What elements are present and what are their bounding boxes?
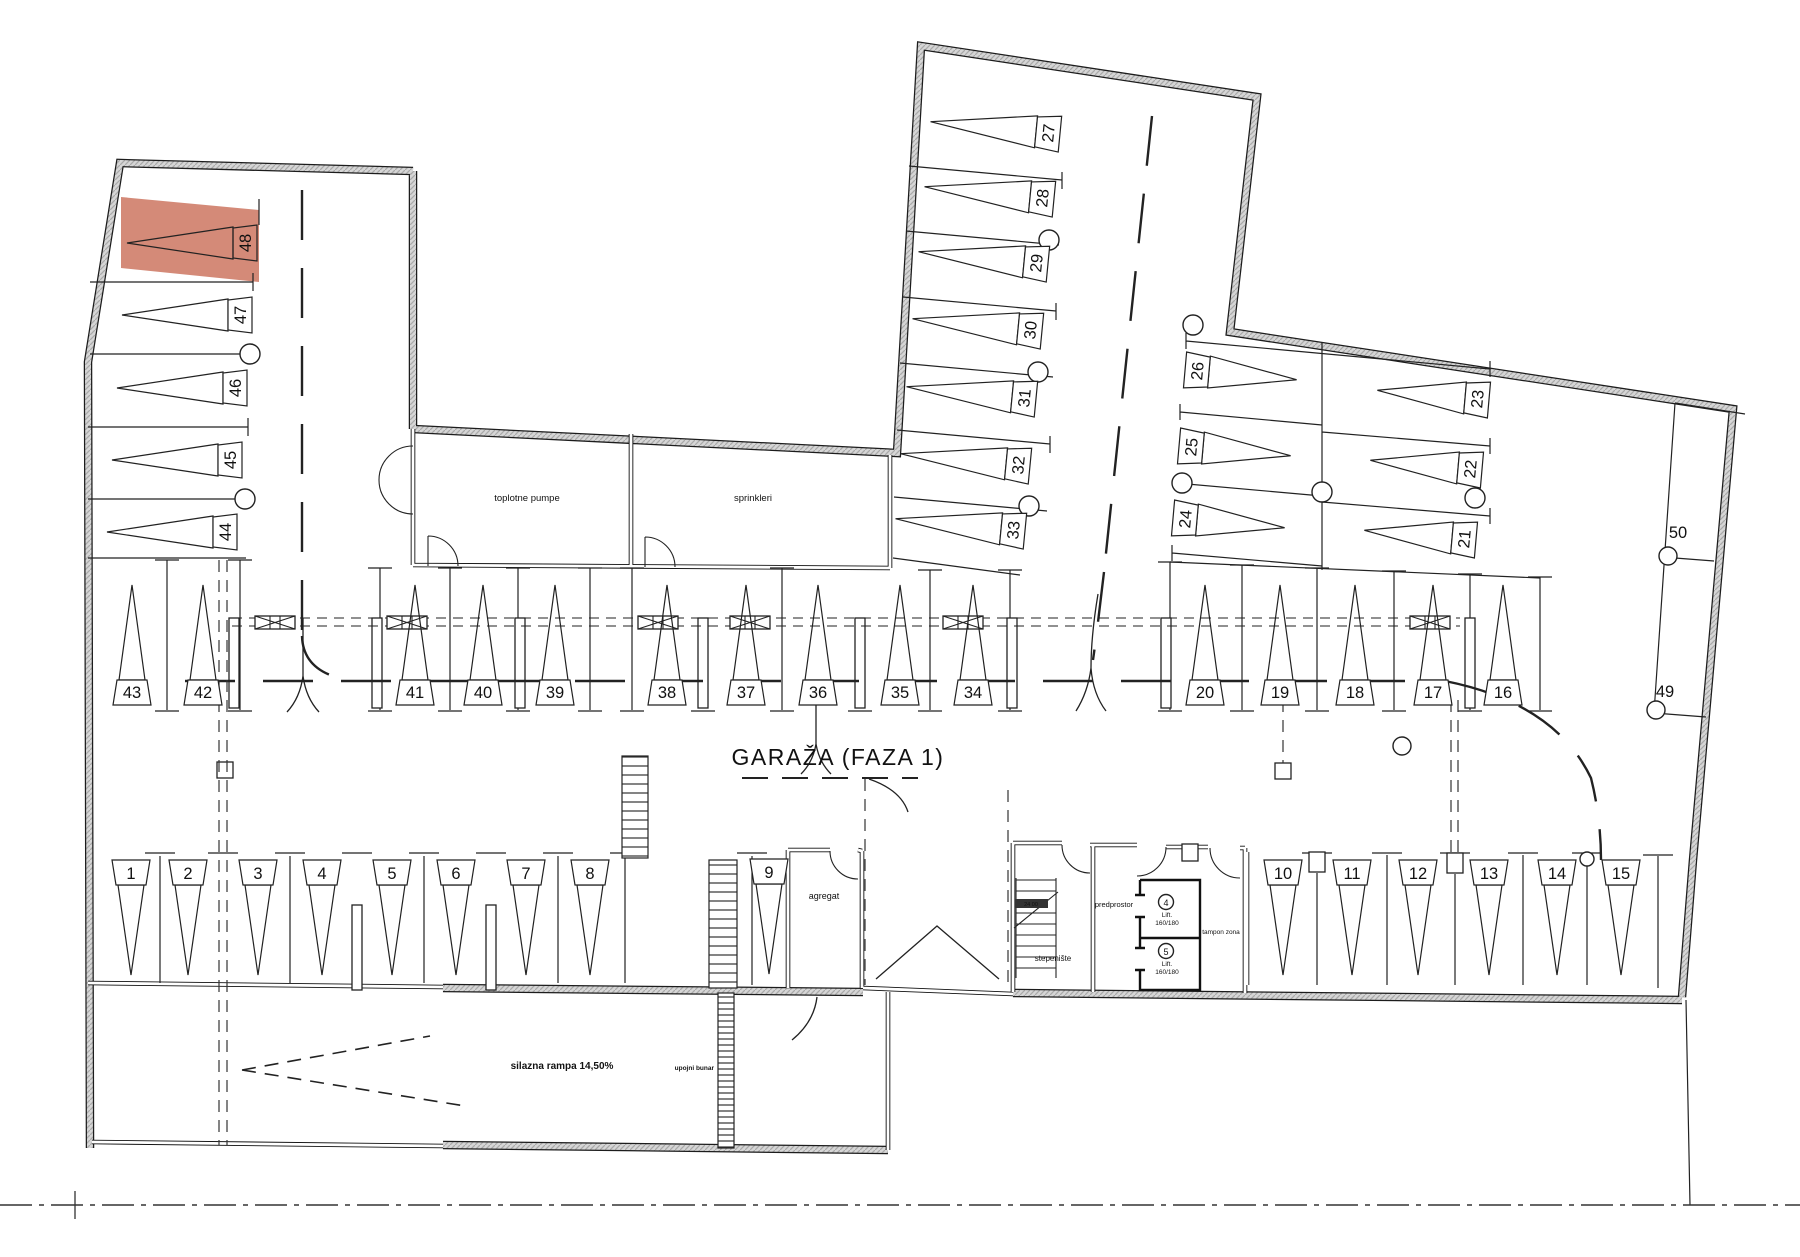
spot-number: 2 [183,865,192,883]
parking-spot-39[interactable]: 39 [536,585,574,705]
spot-wedge [1208,356,1298,396]
parking-spot-10[interactable]: 10 [1264,860,1302,975]
parking-spot-13[interactable]: 13 [1470,860,1508,975]
parking-spot-44[interactable]: 44 [107,514,237,550]
parking-spot-3[interactable]: 3 [239,860,277,975]
plan-title: GARAŽA (FAZA 1) [732,744,945,770]
parking-spot-50[interactable]: 50 [1669,524,1687,542]
parking-spot-17[interactable]: 17 [1414,585,1452,705]
parking-spot-15[interactable]: 15 [1602,860,1640,975]
spot-wedge [1342,585,1368,680]
spot-wedge [905,371,1014,413]
stairs-note: 24 00 [1024,902,1038,908]
parking-spot-43[interactable]: 43 [113,585,151,705]
spot-number: 26 [1188,361,1208,381]
spot-wedge [542,585,568,680]
spot-number: 13 [1480,865,1498,883]
columns [217,230,1677,990]
room-label-sprinkleri: sprinkleri [734,493,772,504]
spot-wedge [1490,585,1516,680]
spot-wedge [1267,585,1293,680]
spot-number: 39 [546,684,564,702]
spot-wedge [1369,444,1459,484]
spot-number: 46 [227,379,245,397]
spot-wedge [1476,885,1502,975]
spot-wedge [1270,885,1296,975]
spot-number: 14 [1548,865,1566,883]
parking-spot-4[interactable]: 4 [303,860,341,975]
lane-lines [0,116,1800,1205]
spot-number: 27 [1039,123,1059,143]
spot-number: 4 [317,865,326,883]
parking-spot-34[interactable]: 34 [954,585,992,705]
spot-number: 30 [1021,320,1041,340]
spot-wedge [1202,432,1292,472]
lift-5-number: 5 [1163,947,1168,957]
spot-number: 25 [1182,437,1202,457]
spot-wedge [443,885,469,975]
spot-number: 12 [1409,865,1427,883]
spot-wedge [1196,504,1286,544]
parking-spot-8[interactable]: 8 [571,860,609,975]
spot-number: 17 [1424,684,1442,702]
parking-spot-21[interactable]: 21 [1363,512,1478,558]
floor-plan-canvas: 24 00 1234567891011121314151617181920212… [0,0,1800,1257]
spot-number: 29 [1027,253,1047,273]
spot-number: 19 [1271,684,1289,702]
room-label-predprostor: predprostor [1095,900,1134,909]
parking-spot-6[interactable]: 6 [437,860,475,975]
spot-wedge [245,885,271,975]
spot-number: 41 [406,684,424,702]
spot-wedge [1363,514,1453,554]
parking-spot-46[interactable]: 46 [117,370,247,406]
spot-wedge [122,299,228,331]
labels: GARAŽA (FAZA 1) toplotne pumpe sprinkler… [494,493,1240,1072]
spot-number: 47 [232,306,250,324]
room-label-stepeniste: stepenište [1035,954,1072,963]
spot-number: 5 [387,865,396,883]
spot-wedge [899,438,1008,480]
parking-spot-22[interactable]: 22 [1369,442,1484,488]
spot-wedge [887,585,913,680]
parking-spot-42[interactable]: 42 [184,585,222,705]
parking-spot-14[interactable]: 14 [1538,860,1576,975]
parking-spot-26[interactable]: 26 [1183,352,1298,398]
spot-number: 18 [1346,684,1364,702]
spot-number: 32 [1009,455,1029,475]
spot-number: 3 [253,865,262,883]
spot-wedge [107,516,213,548]
spot-wedge [112,444,218,476]
room-label-tampon: tampon zona [1202,929,1240,936]
spot-wedge [960,585,986,680]
spot-wedge [577,885,603,975]
spot-wedge [513,885,539,975]
spot-wedge [1544,885,1570,975]
parking-spot-5[interactable]: 5 [373,860,411,975]
garage-floor-plan: 24 00 1234567891011121314151617181920212… [0,0,1800,1257]
ramp-direction-arrow [242,1036,465,1106]
parking-spot-12[interactable]: 12 [1399,860,1437,975]
spot-wedge [175,885,201,975]
lift-4-size: 160/180 [1155,920,1179,927]
spot-wedge [733,585,759,680]
parking-spot-33[interactable]: 33 [894,501,1027,549]
spot-number: 42 [194,684,212,702]
spot-number: 22 [1461,459,1481,479]
spot-number: 34 [964,684,982,702]
parking-spot-28[interactable]: 28 [923,169,1056,217]
parking-spot-2[interactable]: 2 [169,860,207,975]
spot-number: 10 [1274,865,1292,883]
parking-spot-19[interactable]: 19 [1261,585,1299,705]
parking-spot-11[interactable]: 11 [1333,860,1371,975]
spot-number: 44 [217,523,235,541]
parking-spot-35[interactable]: 35 [881,585,919,705]
spot-number: 23 [1468,389,1488,409]
parking-spot-9[interactable]: 9 [750,859,788,974]
spot-number: 8 [585,865,594,883]
spot-wedge [117,372,223,404]
spot-number: 9 [764,864,773,882]
well-label: upojni bunar [675,1065,715,1072]
spot-wedge [402,585,428,680]
well-ladders [622,756,737,1148]
spot-number: 24 [1176,509,1196,529]
ramp-label: silazna rampa 14,50% [511,1061,614,1072]
spot-wedge [929,106,1038,148]
lift-4-name: Lift. [1162,912,1173,919]
parking-spot-27[interactable]: 27 [929,104,1062,152]
parking-spot-45[interactable]: 45 [112,442,242,478]
spot-wedge [654,585,680,680]
spot-number: 28 [1033,188,1053,208]
spot-wedge [1420,585,1446,680]
spot-wedge [894,503,1003,545]
lift-5-size: 160/180 [1155,969,1179,976]
lift-4-number: 4 [1163,898,1168,908]
spot-wedge [1339,885,1365,975]
parking-spot-25[interactable]: 25 [1177,428,1292,474]
spot-number: 11 [1343,865,1360,883]
spot-number: 43 [123,684,141,702]
parking-spot-31[interactable]: 31 [905,369,1038,417]
spot-wedge [1608,885,1634,975]
spot-number: 40 [474,684,492,702]
room-label-toplotne: toplotne pumpe [494,493,560,504]
parking-spots: 1234567891011121314151617181920212223242… [107,104,1687,975]
spot-wedge [1192,585,1218,680]
spot-wedge [756,884,782,974]
parking-spot-38[interactable]: 38 [648,585,686,705]
spot-number: 6 [451,865,460,883]
parking-spot-18[interactable]: 18 [1336,585,1374,705]
parking-spot-47[interactable]: 47 [122,297,252,333]
spot-number: 50 [1669,524,1687,542]
parking-spot-37[interactable]: 37 [727,585,765,705]
spot-wedge [309,885,335,975]
parking-spot-40[interactable]: 40 [464,585,502,705]
spot-number: 45 [222,451,240,469]
spot-number: 1 [126,865,135,883]
spot-wedge [119,585,145,680]
entrance-chevron [876,926,999,979]
spot-wedge [1405,885,1431,975]
spot-number: 31 [1015,388,1035,408]
spot-number: 21 [1455,529,1475,549]
spot-wedge [190,585,216,680]
spot-wedge [379,885,405,975]
parking-spot-23[interactable]: 23 [1376,372,1491,418]
parking-spot-49[interactable]: 49 [1656,683,1674,701]
parking-spot-36[interactable]: 36 [799,585,837,705]
parking-spot-32[interactable]: 32 [899,436,1032,484]
spot-wedge [470,585,496,680]
interior-walls [88,429,1247,1150]
parking-spot-24[interactable]: 24 [1171,500,1286,546]
spot-number: 15 [1612,865,1630,883]
parking-spot-41[interactable]: 41 [396,585,434,705]
spot-number: 37 [737,684,755,702]
spot-number: 36 [809,684,827,702]
spot-wedge [923,171,1032,213]
spot-wedge [1376,374,1466,414]
room-label-agregat: agregat [809,891,840,901]
spot-number: 48 [237,234,255,252]
spot-wedge [911,303,1020,345]
parking-spot-16[interactable]: 16 [1484,585,1522,705]
spot-number: 38 [658,684,676,702]
spot-wedge [118,885,144,975]
spot-number: 49 [1656,683,1674,701]
spot-number: 35 [891,684,909,702]
lift-5-name: Lift. [1162,961,1173,968]
spot-number: 7 [521,865,530,883]
spot-wedge [917,236,1026,278]
parking-spot-29[interactable]: 29 [917,234,1050,282]
parking-spot-7[interactable]: 7 [507,860,545,975]
spot-number: 16 [1494,684,1512,702]
spot-number: 33 [1004,520,1024,540]
parking-spot-20[interactable]: 20 [1186,585,1224,705]
staircase: 24 00 [1014,878,1058,978]
spot-number: 20 [1196,684,1214,702]
parking-spot-1[interactable]: 1 [112,860,150,975]
spot-wedge [805,585,831,680]
